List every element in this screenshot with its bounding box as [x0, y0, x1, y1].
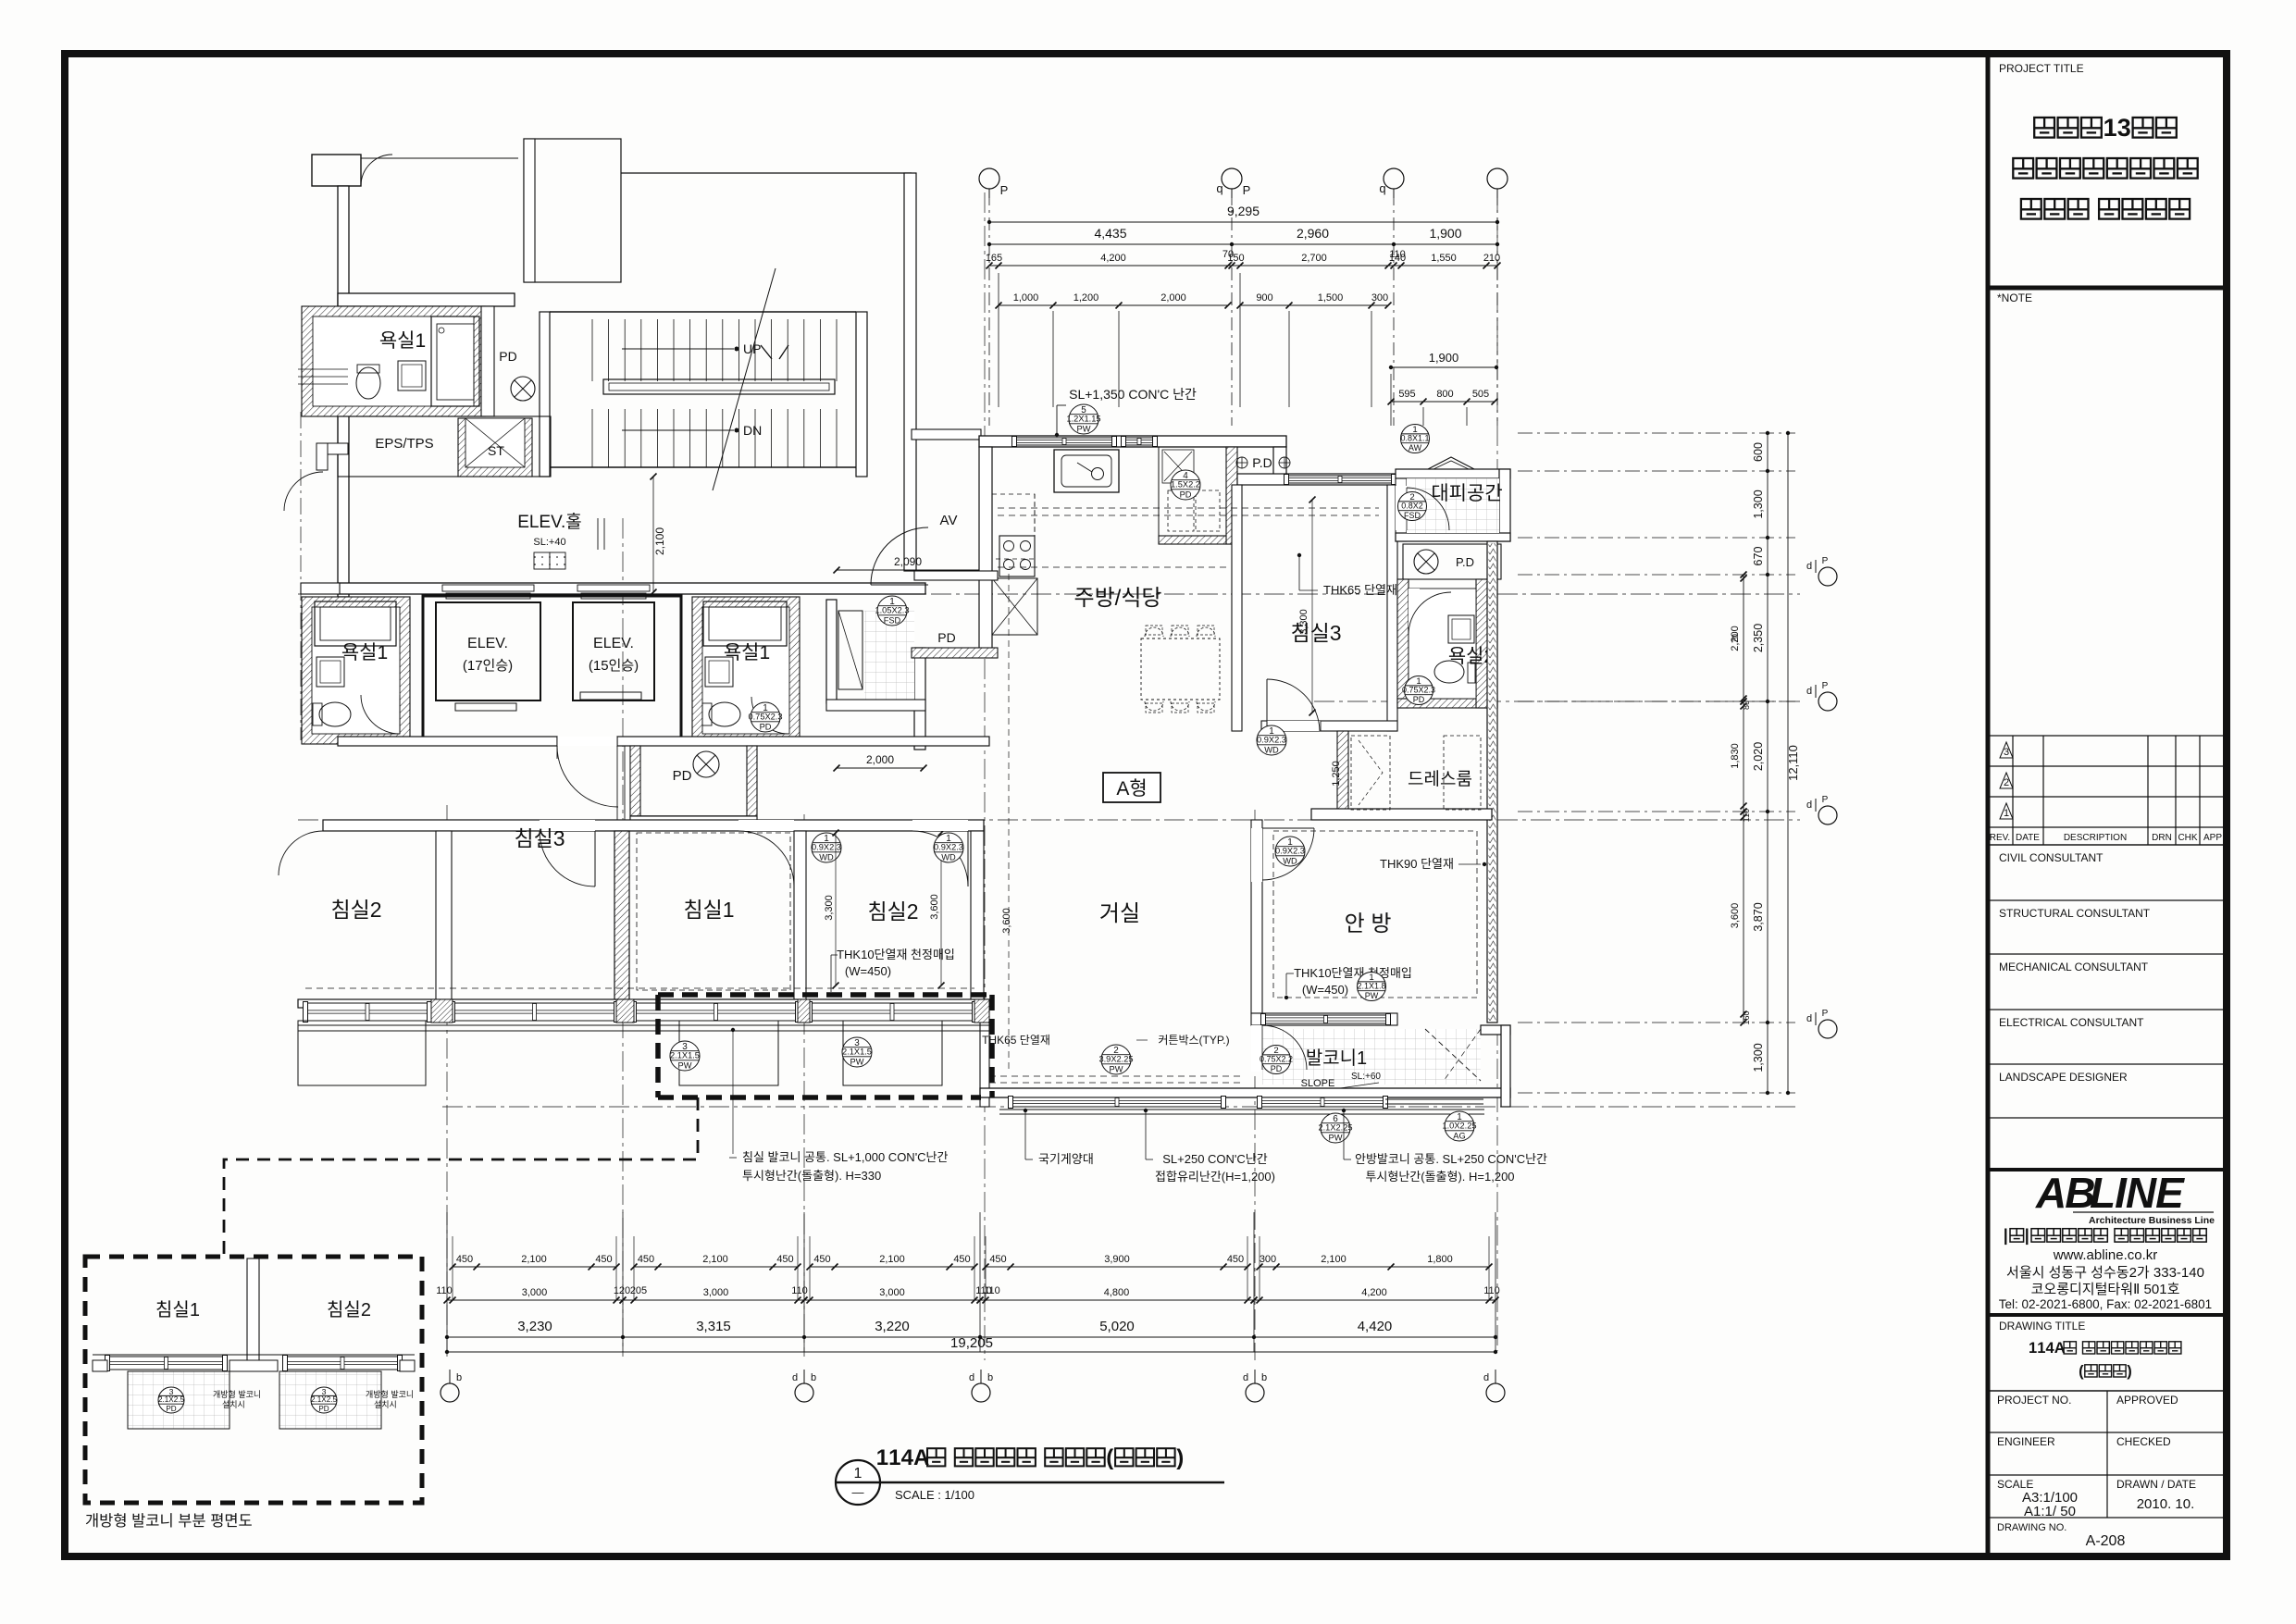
svg-text:d: d: [1806, 800, 1812, 811]
svg-text:3: 3: [2004, 747, 2009, 758]
svg-text:1: 1: [2029, 1340, 2037, 1357]
svg-text:SL+250 CON'C난간: SL+250 CON'C난간: [1162, 1152, 1268, 1166]
svg-text:www.abline.co.kr: www.abline.co.kr: [2053, 1247, 2158, 1263]
svg-text:침실1: 침실1: [155, 1299, 200, 1320]
svg-text:PW: PW: [678, 1061, 692, 1071]
svg-text:PW: PW: [1110, 1065, 1123, 1074]
svg-text:1,830: 1,830: [1730, 743, 1741, 769]
svg-text:PD: PD: [1271, 1064, 1283, 1073]
svg-text:2,100: 2,100: [521, 1254, 547, 1265]
svg-text:450: 450: [456, 1254, 473, 1265]
svg-text:DRAWN / DATE: DRAWN / DATE: [2116, 1478, 2196, 1491]
svg-text:THK65 단열재: THK65 단열재: [1323, 583, 1397, 597]
svg-text:1: 1: [2037, 1340, 2045, 1357]
svg-text:PD: PD: [318, 1405, 329, 1413]
svg-text:|: |: [2004, 1226, 2008, 1245]
svg-text:d: d: [1806, 686, 1812, 697]
svg-text:거실: 거실: [1099, 901, 1140, 926]
svg-text:19,205: 19,205: [950, 1335, 993, 1351]
svg-text:PROJECT NO.: PROJECT NO.: [1997, 1394, 2071, 1407]
svg-text:0.8X2: 0.8X2: [1401, 501, 1422, 510]
svg-text:P: P: [1822, 795, 1829, 805]
svg-text:670: 670: [1752, 547, 1765, 566]
svg-text:2,100: 2,100: [879, 1254, 905, 1265]
svg-text:(: (: [1106, 1445, 1113, 1470]
svg-text:3,300: 3,300: [824, 895, 835, 921]
svg-text:1.05X2.3: 1.05X2.3: [875, 606, 909, 615]
svg-text:2.1X2.5: 2.1X2.5: [158, 1395, 184, 1404]
svg-text:2010. 10.: 2010. 10.: [2137, 1496, 2195, 1512]
svg-text:개방형 발코니: 개방형 발코니: [213, 1390, 261, 1399]
svg-text:A-208: A-208: [2086, 1533, 2126, 1549]
svg-text:0.75X2.2: 0.75X2.2: [1260, 1054, 1293, 1063]
svg-text:WD: WD: [1264, 746, 1279, 755]
svg-text:1.5X2.2: 1.5X2.2: [1171, 480, 1200, 490]
svg-text:WD: WD: [941, 853, 956, 862]
svg-text:(15인승): (15인승): [589, 658, 639, 674]
svg-text:2,960: 2,960: [1297, 226, 1329, 241]
svg-text:DATE: DATE: [2016, 833, 2040, 843]
svg-text:2,090: 2,090: [894, 555, 922, 568]
svg-text:드레스룸: 드레스룸: [1408, 769, 1472, 789]
svg-text:0.9X2.3: 0.9X2.3: [812, 843, 841, 852]
svg-text:APPROVED: APPROVED: [2116, 1394, 2178, 1407]
svg-text:): ): [2127, 1363, 2132, 1380]
svg-text:SL:+60: SL:+60: [1351, 1072, 1381, 1082]
svg-text:—: —: [852, 1485, 864, 1499]
svg-text:3,900: 3,900: [1104, 1254, 1130, 1265]
svg-text:2,000: 2,000: [1160, 292, 1186, 304]
svg-text:PD: PD: [937, 630, 955, 645]
svg-text:침실2: 침실2: [330, 898, 381, 922]
svg-text:1,200: 1,200: [1074, 292, 1099, 304]
svg-text:ST: ST: [488, 443, 504, 458]
svg-text:발코니1: 발코니1: [1306, 1048, 1367, 1069]
svg-text:THK90 단열재: THK90 단열재: [1380, 857, 1454, 871]
svg-text:THK10단열재 천정매입: THK10단열재 천정매입: [837, 948, 955, 961]
svg-text:d: d: [1243, 1372, 1248, 1383]
svg-text:d: d: [1483, 1372, 1489, 1383]
svg-text:3,600: 3,600: [1001, 908, 1012, 934]
svg-text:(W=450): (W=450): [1302, 983, 1348, 997]
svg-text:3,220: 3,220: [875, 1319, 910, 1334]
svg-text:3.9X2.25: 3.9X2.25: [1098, 1055, 1133, 1064]
svg-text:3,300: 3,300: [1298, 609, 1309, 635]
svg-text:설치시: 설치시: [222, 1399, 245, 1409]
svg-text:0.75X2.3: 0.75X2.3: [1402, 685, 1435, 694]
svg-text:침실 발코니 공통. SL+1,000 CON'C난간: 침실 발코니 공통. SL+1,000 CON'C난간: [742, 1150, 949, 1164]
svg-text:1,900: 1,900: [1429, 351, 1459, 365]
svg-text:2.1X1.5: 2.1X1.5: [670, 1051, 700, 1060]
svg-text:b: b: [987, 1372, 993, 1383]
svg-text:ELEV.홀: ELEV.홀: [517, 512, 582, 532]
svg-text:커튼박스(TYP.): 커튼박스(TYP.): [1158, 1034, 1229, 1047]
svg-text:1: 1: [876, 1445, 888, 1470]
svg-text:3: 3: [2117, 114, 2131, 142]
svg-text:SL+1,350 CON'C 난간: SL+1,350 CON'C 난간: [1069, 387, 1197, 402]
svg-text:STRUCTURAL CONSULTANT: STRUCTURAL CONSULTANT: [1999, 907, 2151, 920]
svg-text:PD: PD: [166, 1405, 176, 1413]
svg-text:안 방: 안 방: [1345, 911, 1392, 936]
svg-text:1,300: 1,300: [1752, 490, 1765, 518]
svg-text:110: 110: [984, 1285, 1000, 1296]
svg-text:AW: AW: [1409, 443, 1422, 452]
svg-text:CIVIL CONSULTANT: CIVIL CONSULTANT: [1999, 851, 2104, 864]
svg-text:b: b: [1261, 1372, 1267, 1383]
svg-text:110: 110: [1389, 249, 1406, 260]
svg-text:PD: PD: [499, 349, 516, 364]
svg-text:AB: AB: [2035, 1169, 2094, 1217]
svg-text:침실2: 침실2: [867, 899, 918, 924]
svg-text:PW: PW: [850, 1058, 864, 1067]
svg-text:3,600: 3,600: [1730, 903, 1741, 929]
svg-text:침실2: 침실2: [327, 1299, 371, 1320]
svg-text:A형: A형: [1116, 778, 1147, 800]
svg-text:q: q: [1216, 181, 1222, 195]
svg-text:1,800: 1,800: [1427, 1254, 1453, 1265]
svg-text:800: 800: [1436, 389, 1453, 400]
svg-text:투시형난간(돌출형). H=1,200: 투시형난간(돌출형). H=1,200: [1365, 1170, 1514, 1184]
svg-text:): ): [1176, 1445, 1184, 1470]
svg-text:3,315: 3,315: [696, 1319, 731, 1334]
svg-text:b: b: [811, 1372, 816, 1383]
svg-text:설치시: 설치시: [374, 1399, 397, 1409]
svg-text:300: 300: [1371, 292, 1388, 304]
svg-text:3,230: 3,230: [517, 1319, 552, 1334]
svg-text:THK10단열재 천정매입: THK10단열재 천정매입: [1294, 966, 1412, 980]
svg-text:개방형 발코니 부분 평면도: 개방형 발코니 부분 평면도: [85, 1512, 253, 1530]
svg-text:1: 1: [2104, 114, 2117, 142]
svg-text:P: P: [1243, 183, 1251, 197]
svg-text:LINE: LINE: [2090, 1169, 2185, 1217]
svg-text:450: 450: [953, 1254, 970, 1265]
svg-text:Architecture Business Line: Architecture Business Line: [2089, 1215, 2215, 1226]
svg-text:(: (: [2079, 1363, 2084, 1380]
svg-text:2.1X2.25: 2.1X2.25: [1318, 1123, 1352, 1133]
svg-text:ELEV.: ELEV.: [467, 636, 508, 651]
svg-text:0.9X2.3: 0.9X2.3: [934, 843, 963, 852]
svg-text:침실1: 침실1: [683, 898, 734, 922]
svg-text:4,420: 4,420: [1358, 1319, 1393, 1334]
svg-text:코오롱디지털타워Ⅱ 501호: 코오롱디지털타워Ⅱ 501호: [2031, 1282, 2180, 1297]
svg-text:개방형 발코니: 개방형 발코니: [366, 1390, 414, 1399]
svg-text:욕실1: 욕실1: [724, 642, 770, 663]
svg-text:PD: PD: [1413, 695, 1425, 704]
svg-text:110: 110: [791, 1285, 808, 1296]
svg-text:DN: DN: [743, 423, 762, 438]
svg-text:70: 70: [1731, 634, 1740, 643]
svg-text:1.2X1.15: 1.2X1.15: [1066, 415, 1100, 424]
svg-text:PD: PD: [1180, 490, 1192, 500]
svg-text:1.0X2.25: 1.0X2.25: [1442, 1122, 1476, 1131]
svg-text:침실3: 침실3: [514, 826, 565, 850]
svg-text:2,100: 2,100: [702, 1254, 728, 1265]
svg-text:PW: PW: [1365, 991, 1379, 1000]
svg-text:WD: WD: [1283, 857, 1297, 866]
svg-text:WD: WD: [819, 853, 834, 862]
svg-text:EPS/TPS: EPS/TPS: [375, 436, 433, 452]
svg-text:110: 110: [436, 1285, 453, 1296]
svg-text:P: P: [1822, 681, 1829, 691]
svg-text:d: d: [969, 1372, 974, 1383]
svg-text:욕실1: 욕실1: [341, 642, 388, 663]
svg-text:3,000: 3,000: [522, 1287, 548, 1298]
svg-text:PROJECT TITLE: PROJECT TITLE: [1999, 62, 2084, 75]
svg-text:3,600: 3,600: [929, 894, 940, 920]
svg-text:900: 900: [1256, 292, 1272, 304]
svg-text:450: 450: [638, 1254, 654, 1265]
svg-text:210: 210: [1483, 253, 1500, 264]
svg-text:3,000: 3,000: [703, 1287, 729, 1298]
svg-text:PW: PW: [1329, 1134, 1343, 1143]
svg-text:450: 450: [595, 1254, 612, 1265]
svg-text:접합유리난간(H=1,200): 접합유리난간(H=1,200): [1155, 1170, 1275, 1184]
svg-text:4,435: 4,435: [1094, 226, 1126, 241]
svg-text:P.D: P.D: [1252, 455, 1272, 470]
svg-text:300: 300: [1260, 1254, 1276, 1265]
svg-text:450: 450: [776, 1254, 793, 1265]
svg-text:165: 165: [986, 253, 1002, 264]
svg-text:450: 450: [1227, 1254, 1244, 1265]
svg-text:DESCRIPTION: DESCRIPTION: [2064, 833, 2127, 843]
svg-text:CHK: CHK: [2178, 833, 2197, 843]
svg-text:2,000: 2,000: [866, 753, 894, 766]
svg-text:0.75X2.3: 0.75X2.3: [748, 713, 782, 722]
svg-text:LANDSCAPE DESIGNER: LANDSCAPE DESIGNER: [1999, 1071, 2128, 1084]
svg-text:2.1X1.5: 2.1X1.5: [842, 1048, 872, 1057]
svg-text:5,020: 5,020: [1099, 1319, 1135, 1334]
svg-text:1: 1: [2004, 808, 2009, 819]
svg-text:0.9X2.3: 0.9X2.3: [1275, 847, 1305, 856]
svg-text:PW: PW: [1077, 425, 1091, 434]
svg-text:안방발코니 공통. SL+250 CON'C난간: 안방발코니 공통. SL+250 CON'C난간: [1355, 1152, 1547, 1166]
svg-text:PD: PD: [760, 723, 772, 732]
svg-text:FSD: FSD: [1404, 511, 1421, 520]
svg-text:CHECKED: CHECKED: [2116, 1435, 2171, 1448]
svg-text:(W=450): (W=450): [845, 964, 891, 978]
svg-text:UP: UP: [743, 341, 761, 356]
svg-text:ELECTRICAL CONSULTANT: ELECTRICAL CONSULTANT: [1999, 1016, 2144, 1029]
svg-text:대피공간: 대피공간: [1431, 483, 1502, 504]
svg-text:서울시 성동구 성수동2가 333-140: 서울시 성동구 성수동2가 333-140: [2006, 1265, 2204, 1281]
svg-text:SCALE: SCALE: [1997, 1478, 2033, 1491]
svg-text:d: d: [792, 1372, 798, 1383]
svg-text:|: |: [2025, 1226, 2029, 1245]
svg-text:1,550: 1,550: [1431, 253, 1457, 264]
svg-text:450: 450: [989, 1254, 1006, 1265]
svg-text:P.D: P.D: [1456, 555, 1474, 569]
svg-text:욕실1: 욕실1: [379, 330, 426, 352]
svg-text:2,100: 2,100: [653, 527, 666, 555]
svg-text:d: d: [1806, 561, 1812, 572]
svg-text:FSD: FSD: [884, 616, 901, 626]
svg-text:2.1X1.8: 2.1X1.8: [1358, 981, 1386, 990]
svg-text:ENGINEER: ENGINEER: [1997, 1435, 2055, 1448]
svg-text:1,300: 1,300: [1752, 1043, 1765, 1072]
svg-text:P: P: [1822, 556, 1829, 566]
svg-text:4,200: 4,200: [1361, 1287, 1387, 1298]
svg-text:2,350: 2,350: [1752, 624, 1765, 652]
svg-text:120: 120: [614, 1285, 630, 1296]
svg-text:0.9X2.3: 0.9X2.3: [1257, 736, 1286, 745]
svg-text:4: 4: [901, 1445, 914, 1470]
svg-text:*NOTE: *NOTE: [1997, 291, 2032, 304]
svg-text:SCALE : 1/100: SCALE : 1/100: [895, 1488, 974, 1502]
svg-text:4,200: 4,200: [1100, 253, 1126, 264]
svg-text:1,900: 1,900: [1429, 226, 1461, 241]
svg-text:MECHANICAL CONSULTANT: MECHANICAL CONSULTANT: [1999, 961, 2149, 973]
svg-text:3,000: 3,000: [879, 1287, 905, 1298]
svg-text:DRN: DRN: [2152, 833, 2172, 843]
svg-text:1: 1: [854, 1466, 863, 1481]
svg-text:PD: PD: [673, 768, 692, 784]
svg-text:2.1X2.5: 2.1X2.5: [311, 1395, 337, 1404]
svg-text:APP: APP: [2203, 833, 2222, 843]
svg-text:2,020: 2,020: [1752, 742, 1765, 771]
svg-text:AG: AG: [1453, 1132, 1465, 1141]
svg-text:b: b: [456, 1372, 462, 1383]
svg-text:1,000: 1,000: [1013, 292, 1039, 304]
svg-text:P: P: [1000, 183, 1009, 197]
svg-text:600: 600: [1752, 442, 1765, 462]
svg-text:12,110: 12,110: [1786, 745, 1800, 781]
svg-text:450: 450: [813, 1254, 830, 1265]
svg-text:1,250: 1,250: [1331, 761, 1342, 787]
svg-text:q: q: [1379, 181, 1385, 195]
svg-text:DRAWING NO.: DRAWING NO.: [1997, 1522, 2066, 1533]
svg-text:2: 2: [2004, 777, 2009, 788]
svg-text:SL:+40: SL:+40: [533, 537, 565, 548]
svg-text:0.8X1.1: 0.8X1.1: [1401, 433, 1430, 442]
svg-text:SLOPE: SLOPE: [1301, 1078, 1335, 1089]
svg-text:(17인승): (17인승): [463, 658, 513, 674]
svg-text:4,800: 4,800: [1104, 1287, 1130, 1298]
svg-text:Tel: 02-2021-6800, Fax: 02-202: Tel: 02-2021-6800, Fax: 02-2021-6801: [1999, 1297, 2212, 1311]
svg-text:REV.: REV.: [1990, 833, 2010, 843]
svg-text:505: 505: [1472, 389, 1489, 400]
svg-text:1: 1: [888, 1445, 900, 1470]
svg-text:ELEV.: ELEV.: [593, 636, 634, 651]
svg-text:AV: AV: [940, 513, 958, 528]
svg-text:국기게양대: 국기게양대: [1038, 1152, 1094, 1166]
svg-text:2,100: 2,100: [1321, 1254, 1347, 1265]
svg-text:2,700: 2,700: [1301, 253, 1327, 264]
svg-text:d: d: [1806, 1013, 1812, 1024]
svg-text:DRAWING TITLE: DRAWING TITLE: [1999, 1320, 2085, 1333]
svg-text:595: 595: [1398, 389, 1415, 400]
svg-text:투시형난간(돌출형). H=330: 투시형난간(돌출형). H=330: [742, 1169, 881, 1183]
svg-text:205: 205: [630, 1285, 647, 1296]
svg-text:주방/식당: 주방/식당: [1074, 586, 1162, 611]
svg-text:3,870: 3,870: [1752, 902, 1765, 931]
svg-text:1,500: 1,500: [1318, 292, 1344, 304]
svg-text:P: P: [1822, 1009, 1829, 1019]
